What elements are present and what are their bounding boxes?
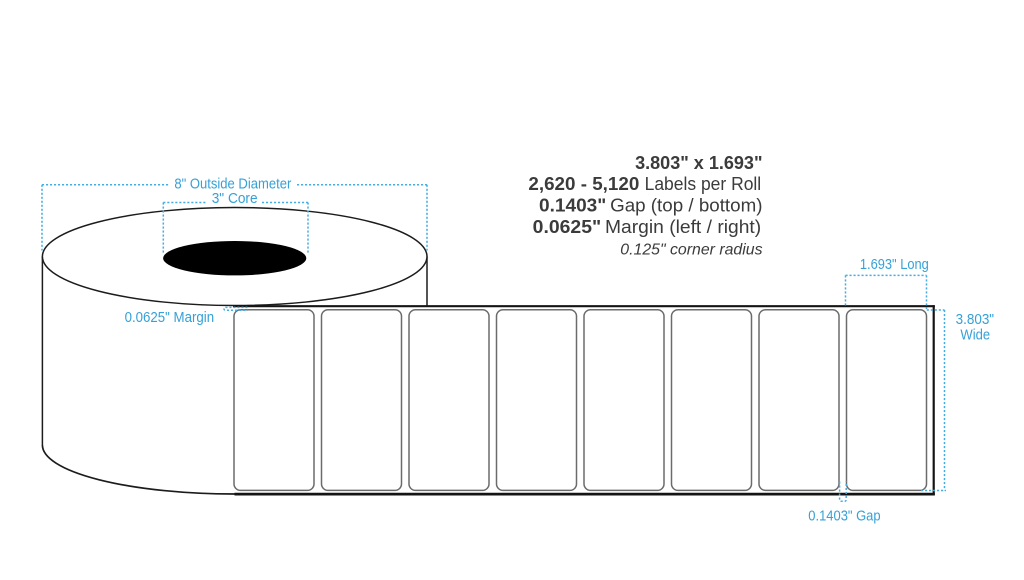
- svg-text:1.693" Long: 1.693" Long: [860, 257, 929, 273]
- svg-text:Gap (top / bottom): Gap (top / bottom): [610, 196, 762, 216]
- svg-text:2,620 - 5,120: 2,620 - 5,120: [528, 174, 639, 194]
- svg-text:Margin (left / right): Margin (left / right): [605, 217, 761, 237]
- svg-text:Labels per Roll: Labels per Roll: [645, 174, 762, 194]
- svg-text:3.803" x 1.693": 3.803" x 1.693": [635, 153, 762, 173]
- svg-text:Wide: Wide: [960, 328, 990, 344]
- svg-text:0.1403" Gap: 0.1403" Gap: [808, 509, 880, 525]
- svg-text:0.1403": 0.1403": [539, 196, 606, 216]
- svg-text:0.0625": 0.0625": [533, 217, 602, 237]
- svg-text:0.125" corner radius: 0.125" corner radius: [620, 242, 762, 259]
- svg-text:3" Core: 3" Core: [212, 191, 258, 207]
- svg-text:3.803": 3.803": [956, 312, 995, 328]
- svg-text:0.0625" Margin: 0.0625" Margin: [125, 310, 215, 326]
